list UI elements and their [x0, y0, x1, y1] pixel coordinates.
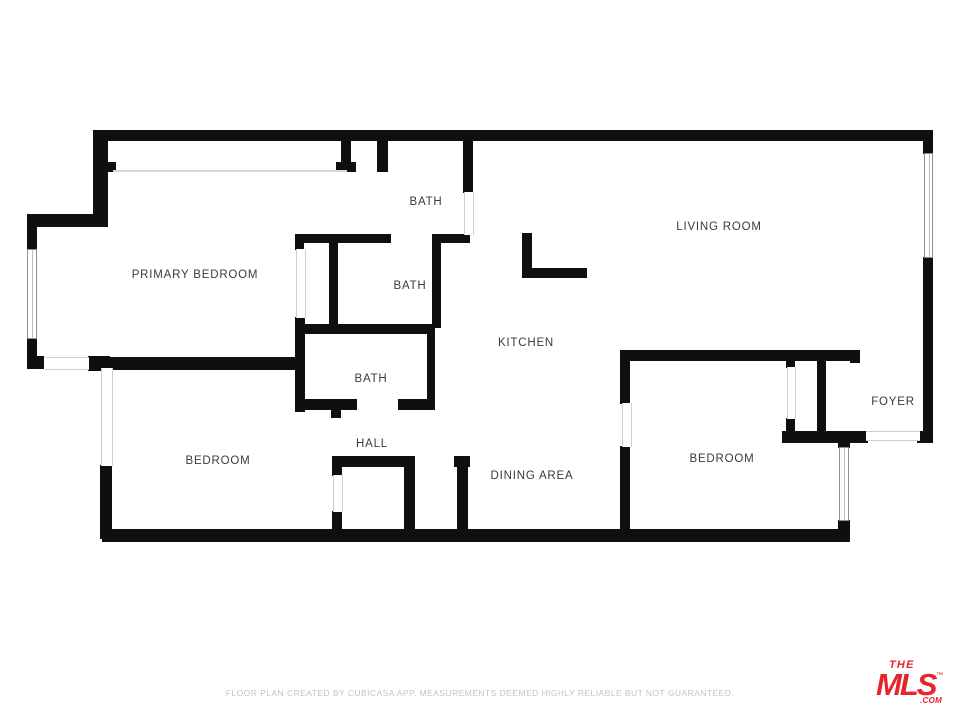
wall-segment	[295, 324, 435, 334]
window	[27, 249, 37, 339]
room-label-dining-area: DINING AREA	[491, 470, 574, 482]
wall-segment	[786, 418, 795, 433]
room-label-bath: BATH	[354, 373, 387, 385]
wall-segment	[404, 456, 415, 532]
wall-segment	[296, 399, 357, 410]
room-label-bath: BATH	[393, 280, 426, 292]
wall-segment	[620, 446, 630, 532]
wall-segment	[93, 130, 108, 226]
room-label-hall: HALL	[356, 438, 388, 450]
wall-segment	[295, 234, 391, 243]
wall-segment	[522, 268, 587, 278]
wall-segment	[377, 140, 388, 172]
window	[839, 447, 849, 521]
wall-segment	[923, 257, 933, 443]
disclaimer-text: FLOOR PLAN CREATED BY CUBICASA APP. MEAS…	[0, 688, 960, 698]
closet-line	[113, 170, 347, 172]
room-label-living-room: LIVING ROOM	[676, 221, 761, 233]
wall-segment	[398, 399, 435, 410]
floor-plan: BATHLIVING ROOMPRIMARY BEDROOMBATHKITCHE…	[0, 0, 960, 720]
wall-segment	[331, 405, 341, 418]
wall-segment	[923, 140, 933, 154]
wall-segment	[329, 240, 338, 326]
room-label-bedroom: BEDROOM	[689, 453, 754, 465]
window	[924, 153, 933, 258]
door-opening	[296, 249, 306, 318]
room-label-foyer: FOYER	[871, 396, 915, 408]
door-opening	[464, 192, 474, 235]
mls-logo: THE MLS ™ .COM	[876, 658, 948, 706]
door-opening	[787, 367, 796, 419]
wall-segment	[102, 529, 850, 542]
door-opening	[866, 431, 920, 441]
wall-segment	[100, 465, 112, 539]
door-opening	[622, 403, 632, 447]
wall-segment	[295, 234, 304, 250]
wall-segment	[27, 356, 44, 369]
wall-segment	[427, 326, 435, 410]
logo-trademark: ™	[936, 672, 943, 679]
wall-segment	[838, 520, 850, 533]
door-opening	[101, 368, 113, 466]
wall-segment	[93, 130, 933, 141]
door-opening	[333, 475, 343, 512]
wall-segment	[27, 214, 108, 227]
floor-plan-canvas: BATHLIVING ROOMPRIMARY BEDROOMBATHKITCHE…	[0, 0, 960, 720]
wall-segment	[432, 234, 441, 328]
room-label-bath: BATH	[409, 196, 442, 208]
wall-segment	[463, 140, 473, 193]
wall-segment	[620, 350, 630, 404]
wall-segment	[332, 511, 342, 531]
wall-segment	[850, 350, 860, 363]
wall-segment	[457, 456, 468, 532]
room-label-kitchen: KITCHEN	[498, 337, 554, 349]
wall-segment	[817, 350, 826, 440]
door-opening	[45, 357, 89, 370]
wall-segment	[108, 357, 298, 370]
logo-com-text: .COM	[920, 697, 942, 705]
wall-segment	[27, 214, 37, 250]
room-label-bedroom: BEDROOM	[185, 455, 250, 467]
room-label-primary-bedroom: PRIMARY BEDROOM	[132, 269, 259, 281]
wall-segment	[332, 456, 413, 467]
